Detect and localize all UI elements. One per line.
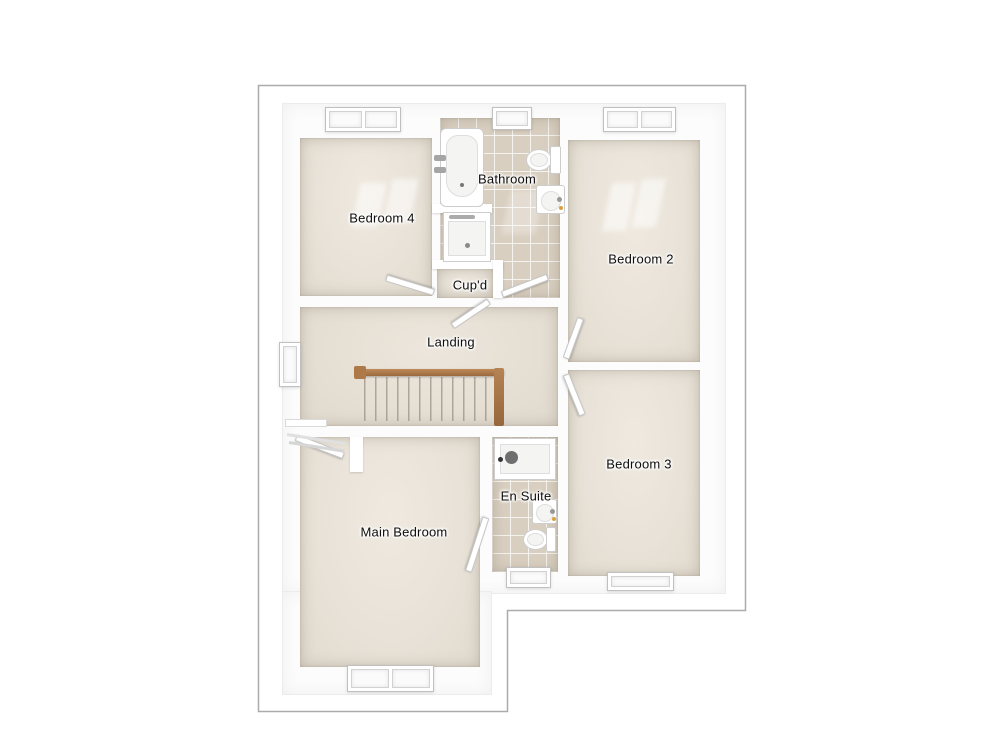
toilet-seat: [530, 153, 548, 167]
shower-mixer: [449, 215, 475, 219]
window-main-bedroom: [347, 665, 434, 692]
window-pane: [329, 111, 362, 128]
window-pane: [510, 571, 547, 584]
room-label-bedroom-2: Bedroom 2: [608, 252, 673, 267]
staircase-balusters: [364, 377, 494, 421]
window-bedroom-4: [325, 107, 401, 132]
staircase-handrail: [356, 369, 504, 376]
room-label-bedroom-4: Bedroom 4: [349, 211, 414, 226]
wall-stub-main-bedroom-nook: [350, 437, 363, 472]
shower-tray-bathroom: [443, 212, 491, 262]
staircase-newel-right: [494, 368, 504, 426]
soap-dish: [552, 517, 556, 521]
staircase-newel-left: [354, 366, 366, 379]
shower-head: [505, 451, 518, 464]
room-label-cupboard: Cup'd: [453, 278, 488, 293]
window-pane: [392, 669, 430, 688]
toilet-cistern-bathroom: [550, 146, 561, 174]
toilet-cistern-en-suite: [546, 527, 556, 552]
window-pane: [365, 111, 398, 128]
floorplan-canvas: Bedroom 4 Bathroom Bedroom 2 Cup'd Landi…: [0, 0, 1000, 750]
bathtub-drain: [460, 183, 464, 187]
room-label-bathroom: Bathroom: [478, 172, 536, 187]
window-landing: [279, 342, 301, 387]
toilet-seat: [527, 533, 544, 546]
bath-tap: [434, 167, 446, 173]
window-pane: [641, 111, 672, 128]
shower-drain: [465, 243, 470, 248]
basin-tap: [550, 509, 555, 514]
window-bedroom-3: [607, 572, 674, 591]
radiator: [285, 419, 327, 427]
window-pane: [351, 669, 389, 688]
window-pane: [611, 576, 670, 587]
bath-tap: [434, 155, 446, 161]
room-bedroom-3: [568, 370, 700, 576]
shower-tray-en-suite: [494, 438, 556, 480]
room-label-en-suite: En Suite: [501, 489, 552, 504]
toilet-bowl-en-suite: [523, 529, 548, 550]
basin-tap: [557, 197, 562, 202]
room-label-bedroom-3: Bedroom 3: [606, 457, 671, 472]
window-pane: [283, 346, 297, 383]
shower-control: [498, 457, 503, 462]
room-label-main-bedroom: Main Bedroom: [361, 525, 448, 540]
room-label-landing: Landing: [427, 335, 475, 350]
window-bathroom: [492, 107, 532, 130]
toilet-bowl-bathroom: [526, 149, 552, 171]
window-pane: [607, 111, 638, 128]
wash-basin-bathroom: [536, 185, 565, 214]
soap-dish: [559, 206, 563, 210]
bathtub: [440, 128, 484, 207]
window-en-suite: [506, 567, 551, 588]
bathtub-basin: [446, 135, 478, 197]
room-main-bedroom: [300, 437, 480, 667]
shower-tray-inner: [448, 221, 486, 256]
window-bedroom-2: [603, 107, 676, 132]
window-pane: [496, 111, 528, 126]
